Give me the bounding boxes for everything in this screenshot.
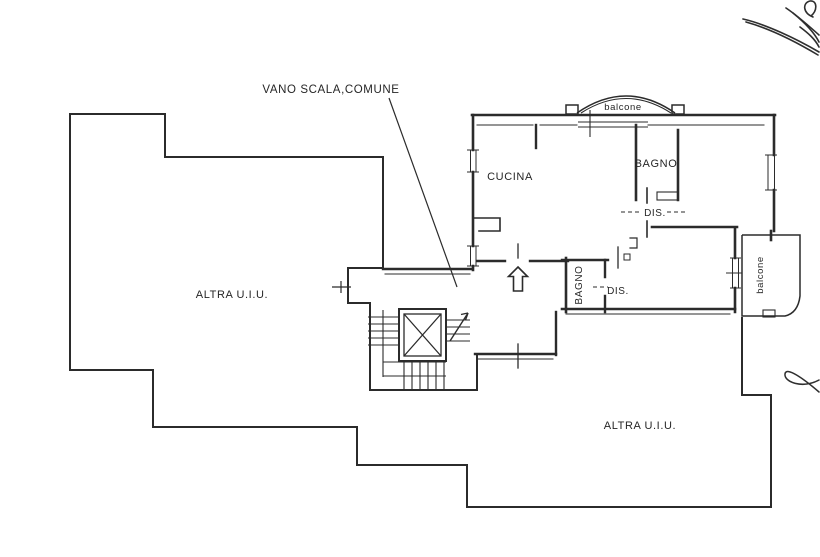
callout-leader-line: [389, 98, 457, 287]
balcony-top-label: balcone: [604, 102, 641, 113]
elevator-cross: [404, 314, 441, 356]
balcony-right: [742, 235, 800, 317]
stairwell: [368, 309, 470, 389]
entrance-arrow-icon: [509, 267, 528, 291]
left-unit-top-wall: [70, 114, 383, 268]
other-unit-bottom-label: ALTRA U.I.U.: [604, 420, 676, 432]
kitchen-window-lower: [467, 246, 479, 266]
building-outline: [70, 114, 771, 507]
stairs-right-flight: [446, 320, 470, 341]
stairwell-callout-label: VANO SCALA,COMUNE: [262, 84, 399, 96]
interior-partitions: [473, 125, 737, 312]
hallway-upper-label: DIS.: [644, 208, 666, 219]
hallway-dashes: [593, 212, 687, 287]
handwriting-scribble-right-edge: [785, 372, 819, 392]
balcony-door-right: [726, 258, 742, 288]
bathroom-lower-label: BAGNO: [574, 265, 585, 304]
stairs-bottom-flight: [383, 362, 446, 389]
floor-plan-sheet: VANO SCALA,COMUNE CUCINA BAGNO DIS. BAGN…: [0, 0, 820, 557]
handwriting-scribble-top-right: [743, 1, 819, 55]
bedroom-window-right: [765, 155, 777, 190]
perimeter-wall: [70, 114, 771, 507]
hallway-lower-label: DIS.: [607, 286, 629, 297]
kitchen-label: CUCINA: [487, 171, 533, 183]
bath-fixture: [657, 192, 678, 200]
stairs-left-flight: [368, 310, 399, 377]
kitchen-window-upper: [467, 150, 479, 172]
floor-plan-drawing: VANO SCALA,COMUNE CUCINA BAGNO DIS. BAGN…: [0, 0, 820, 557]
other-unit-left-label: ALTRA U.I.U.: [196, 289, 268, 301]
balcony-right-label: balcone: [755, 256, 766, 293]
bathroom-upper-label: BAGNO: [635, 158, 678, 170]
